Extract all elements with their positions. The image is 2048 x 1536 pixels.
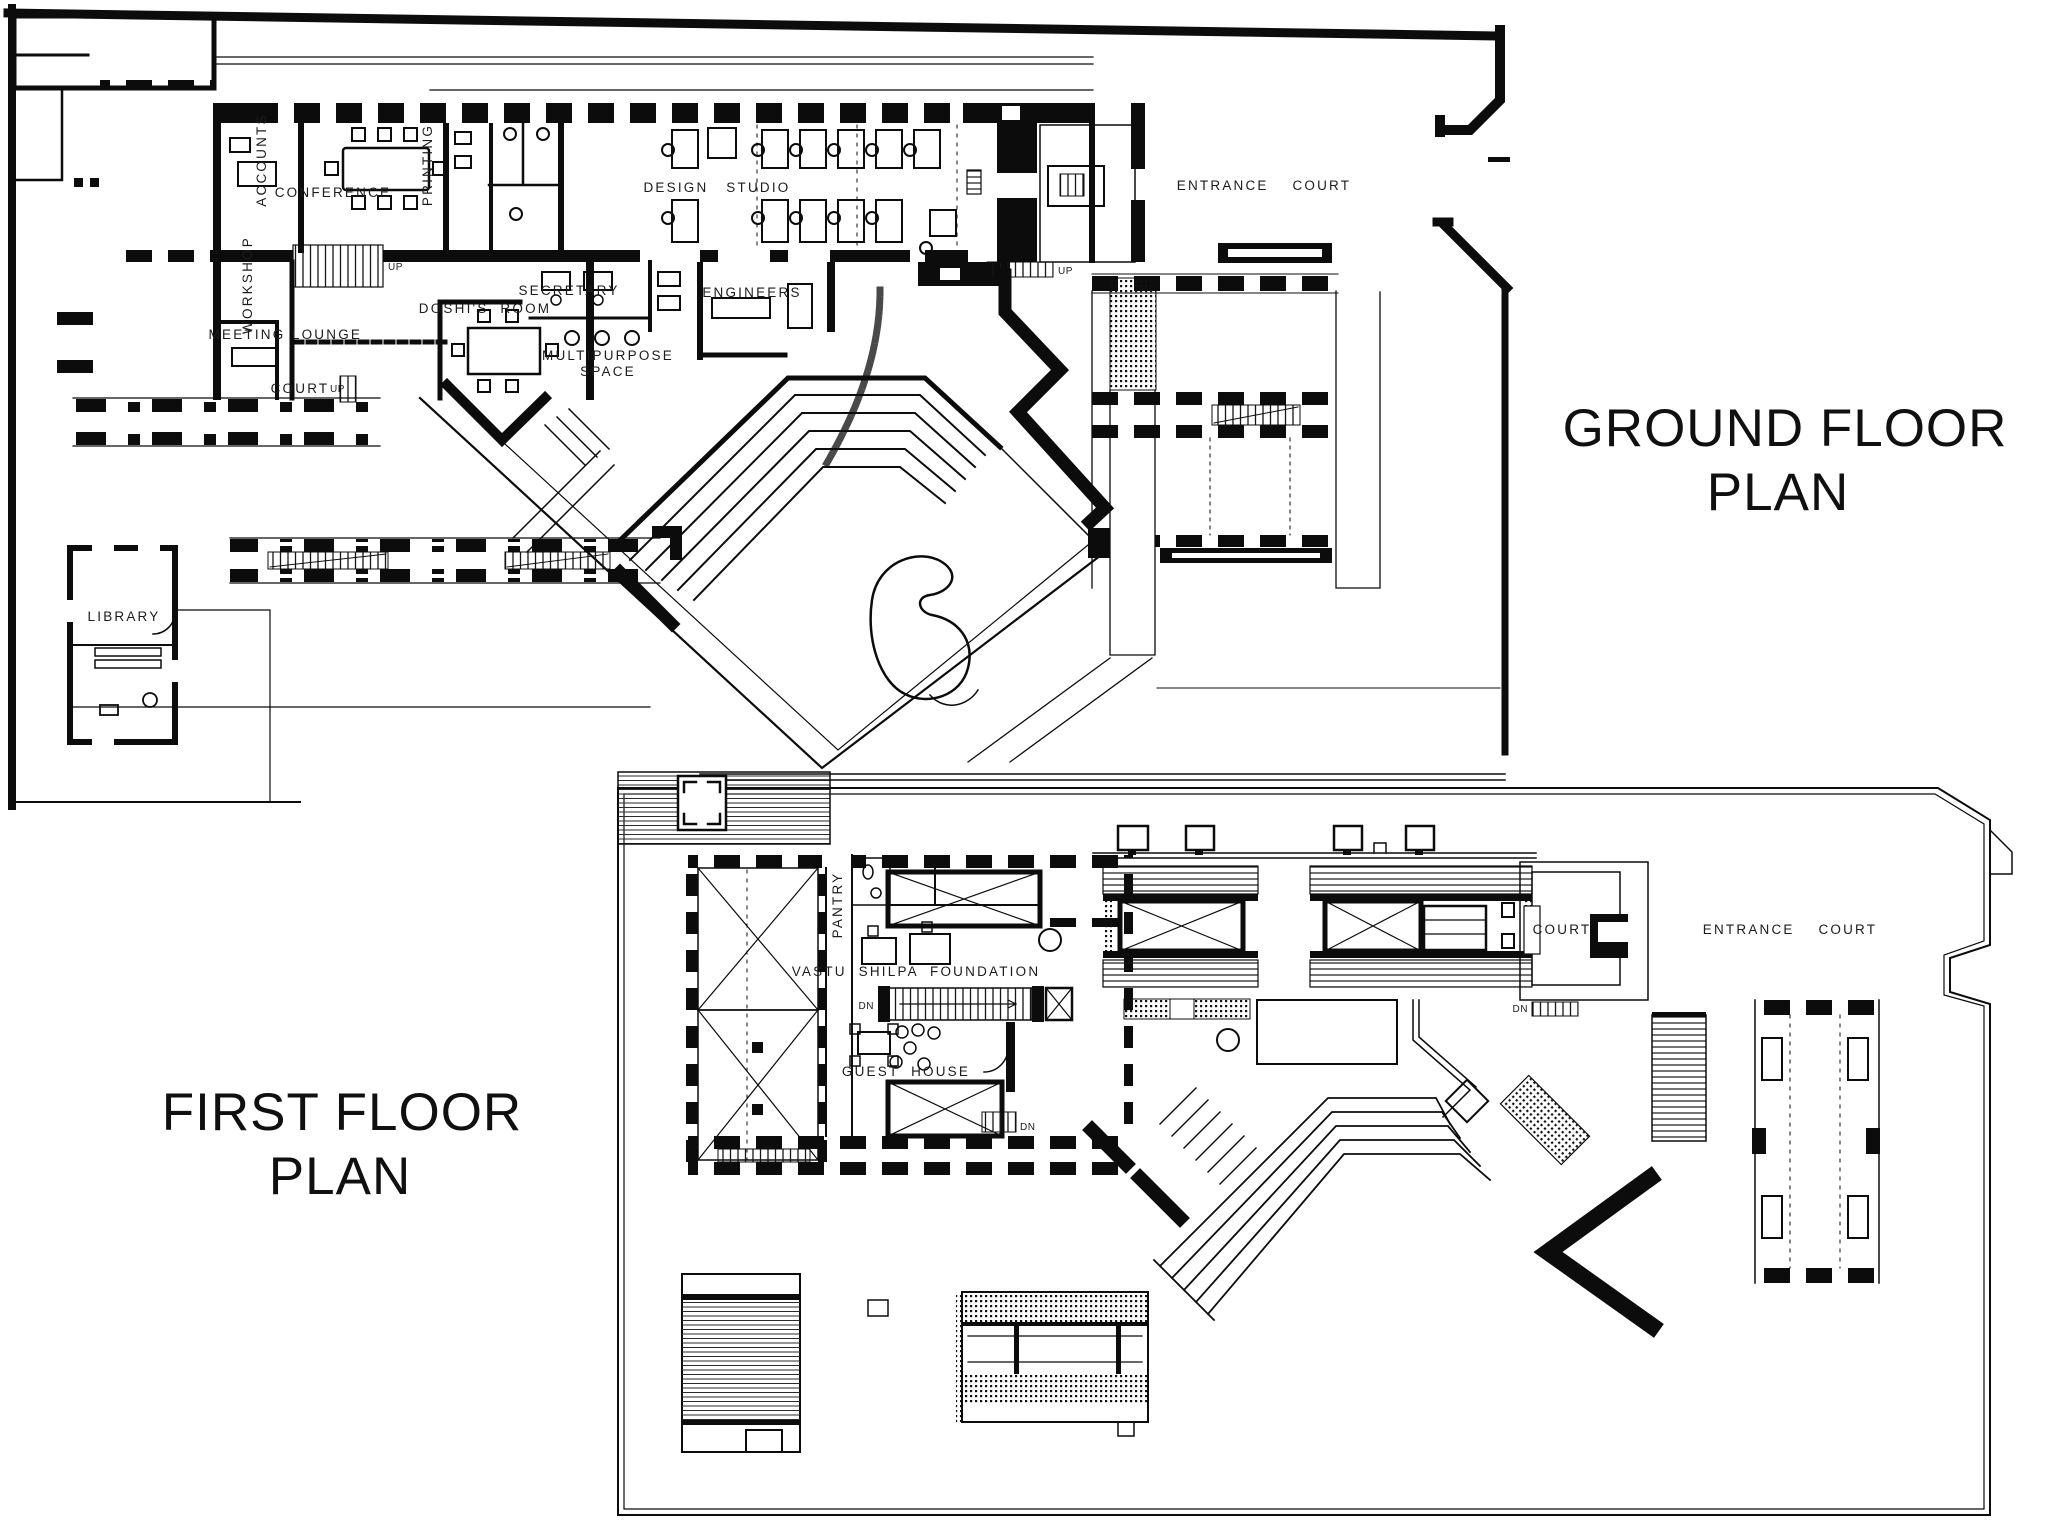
label-dn-guest: DN — [1020, 1122, 1035, 1133]
label-guest-house: GUEST HOUSE — [842, 1064, 970, 1079]
label-dn-main: DN — [859, 1001, 874, 1012]
ground-floor-title-line2: PLAN — [1707, 463, 1849, 522]
court-block — [1520, 862, 1648, 1016]
east-wing — [968, 243, 1500, 762]
label-pantry: PANTRY — [830, 872, 845, 939]
east-wide-stair — [1652, 1012, 1706, 1141]
court-dn-stair-hatch — [1532, 1002, 1578, 1016]
label-court-first: COURT — [1533, 922, 1592, 937]
page: ACCOUNTS CONFERENCE PRINTING DESIGN STUD… — [0, 0, 2048, 1536]
vastu-shilpa-suite — [862, 855, 1133, 1136]
label-up-entry: UP — [1058, 266, 1073, 277]
lounge-stair-hatch — [293, 245, 383, 287]
label-multipurpose-2: SPACE — [580, 364, 636, 379]
label-library: LIBRARY — [88, 609, 161, 624]
meeting-room-furniture — [230, 128, 549, 220]
courtyard — [420, 275, 1110, 768]
first-floor-title-line1: FIRST FLOOR — [162, 1083, 522, 1142]
label-up-court: UP — [330, 384, 345, 395]
floor-plans-drawing: ACCOUNTS CONFERENCE PRINTING DESIGN STUD… — [0, 0, 2048, 1536]
entry-vestibule — [967, 103, 1145, 262]
colonnade-south — [230, 538, 660, 583]
ground-floor-title-line1: GROUND FLOOR — [1563, 399, 2008, 458]
label-up-lounge: UP — [388, 262, 403, 273]
label-doshis-room: DOSHI'S ROOM — [419, 301, 551, 316]
deck — [1257, 1000, 1397, 1064]
sculpture-blob — [871, 556, 970, 699]
roof-boxes — [1118, 826, 1434, 855]
entry-stair-hatch — [987, 262, 1053, 277]
label-entrance-court-ground: ENTRANCE COURT — [1177, 178, 1351, 193]
bottom-roof-buildings — [682, 1274, 1148, 1452]
guest-stair-hatch — [982, 1112, 1016, 1132]
label-meeting: MEETING — [209, 327, 286, 342]
label-secretary: SECRETARY — [518, 283, 619, 298]
label-accounts: ACCOUNTS — [254, 113, 269, 206]
label-vastu-shilpa: VASTU SHILPA FOUNDATION — [792, 964, 1041, 979]
ramp-hatch — [1110, 278, 1156, 390]
right-building — [1752, 1000, 1880, 1283]
label-court: COURT — [271, 381, 330, 396]
label-workshop: WORKSHOP — [240, 236, 255, 334]
label-printing: PRINTING — [420, 124, 435, 206]
roof-strip — [618, 772, 830, 844]
label-design-studio: DESIGN STUDIO — [643, 180, 790, 195]
label-conference: CONFERENCE — [275, 185, 392, 200]
label-lounge: LOUNGE — [292, 327, 362, 342]
label-multipurpose-1: MULTIPURPOSE — [542, 348, 674, 363]
colonnade-north — [73, 398, 380, 446]
first-floor-title-line2: PLAN — [269, 1147, 411, 1206]
first-floor-plan: PANTRY VASTU SHILPA FOUNDATION GUEST HOU… — [618, 772, 2012, 1515]
gatehouse — [14, 16, 215, 373]
label-engineers: ENGINEERS — [702, 285, 801, 300]
diagonal-stair-hatch — [1500, 1075, 1589, 1164]
ground-floor-plan: ACCOUNTS CONFERENCE PRINTING DESIGN STUD… — [8, 8, 1510, 806]
label-dn-court: DN — [1513, 1004, 1528, 1015]
amphitheatre-steps — [1154, 1000, 1652, 1326]
label-entrance-court-first: ENTRANCE COURT — [1703, 922, 1877, 937]
